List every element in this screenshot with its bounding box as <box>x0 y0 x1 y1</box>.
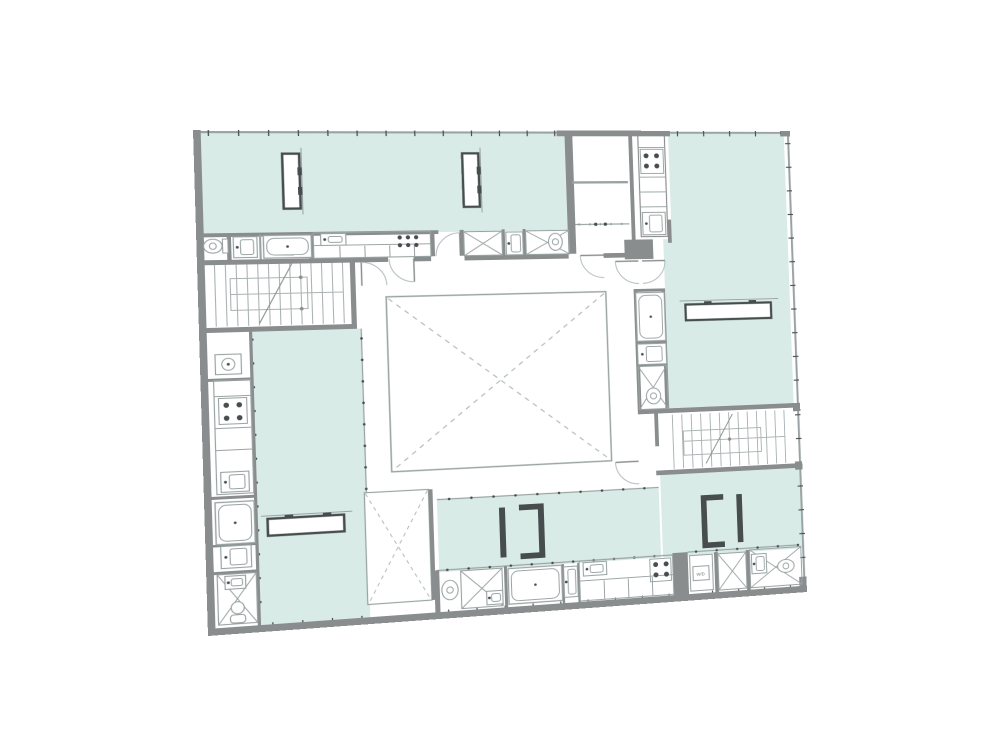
wardrobe <box>282 154 301 209</box>
wardrobe-notch <box>704 301 712 305</box>
toilet <box>548 233 562 250</box>
light-shaft <box>364 489 432 604</box>
washer-dryer-label: W/D <box>696 572 705 578</box>
sink <box>487 590 504 605</box>
wardrobe <box>685 302 771 320</box>
bathtub <box>508 565 563 604</box>
sink <box>506 232 524 255</box>
wardrobe-notch <box>477 167 481 175</box>
kitchen-sink <box>583 561 607 576</box>
wall-top-right-stub <box>781 131 790 136</box>
room-bottom-middle <box>437 487 661 572</box>
kitchen-sink <box>642 212 666 235</box>
floor-plan-page: W/D <box>0 0 1000 750</box>
wardrobe <box>462 153 480 207</box>
sink <box>564 566 579 597</box>
kitchen-sink <box>221 471 250 492</box>
wall-whiteroom-sill <box>572 181 628 184</box>
wall-band-chunk <box>672 552 689 595</box>
wardrobe-notch <box>323 512 332 516</box>
floor-plan-svg: W/D <box>193 130 807 636</box>
wall-chunk-kitchen <box>624 239 653 259</box>
toilet <box>203 239 228 253</box>
wardrobe-notch <box>297 167 301 175</box>
room-left <box>252 329 370 625</box>
toilet <box>442 580 459 601</box>
wall-top-middle <box>557 131 670 137</box>
toilet-bowl <box>231 601 244 614</box>
wardrobe-notch <box>749 300 757 304</box>
wall-corridor-north <box>603 253 624 258</box>
door-leaf <box>414 259 415 282</box>
room-top-right-upper <box>668 134 788 239</box>
wardrobe-notch <box>285 514 294 518</box>
wardrobe-notch <box>298 187 302 195</box>
room-bottom-right <box>660 468 803 558</box>
bathtub <box>636 292 666 341</box>
sink <box>225 575 246 589</box>
door-leaf <box>361 262 362 285</box>
toilet-base <box>230 614 245 623</box>
sink <box>637 343 666 364</box>
toilet <box>646 388 661 404</box>
floor-plan: W/D <box>193 130 807 636</box>
bathtub <box>215 501 255 545</box>
wardrobe <box>268 515 345 536</box>
wardrobe-notch <box>477 186 481 194</box>
sink <box>233 237 257 258</box>
door-leaf <box>460 233 461 256</box>
kitchen-sink <box>321 233 347 245</box>
sink <box>221 545 252 569</box>
room-top-left <box>201 133 568 235</box>
room-top-right-lower <box>663 237 793 408</box>
bathtub <box>263 235 312 258</box>
sink <box>751 553 766 573</box>
